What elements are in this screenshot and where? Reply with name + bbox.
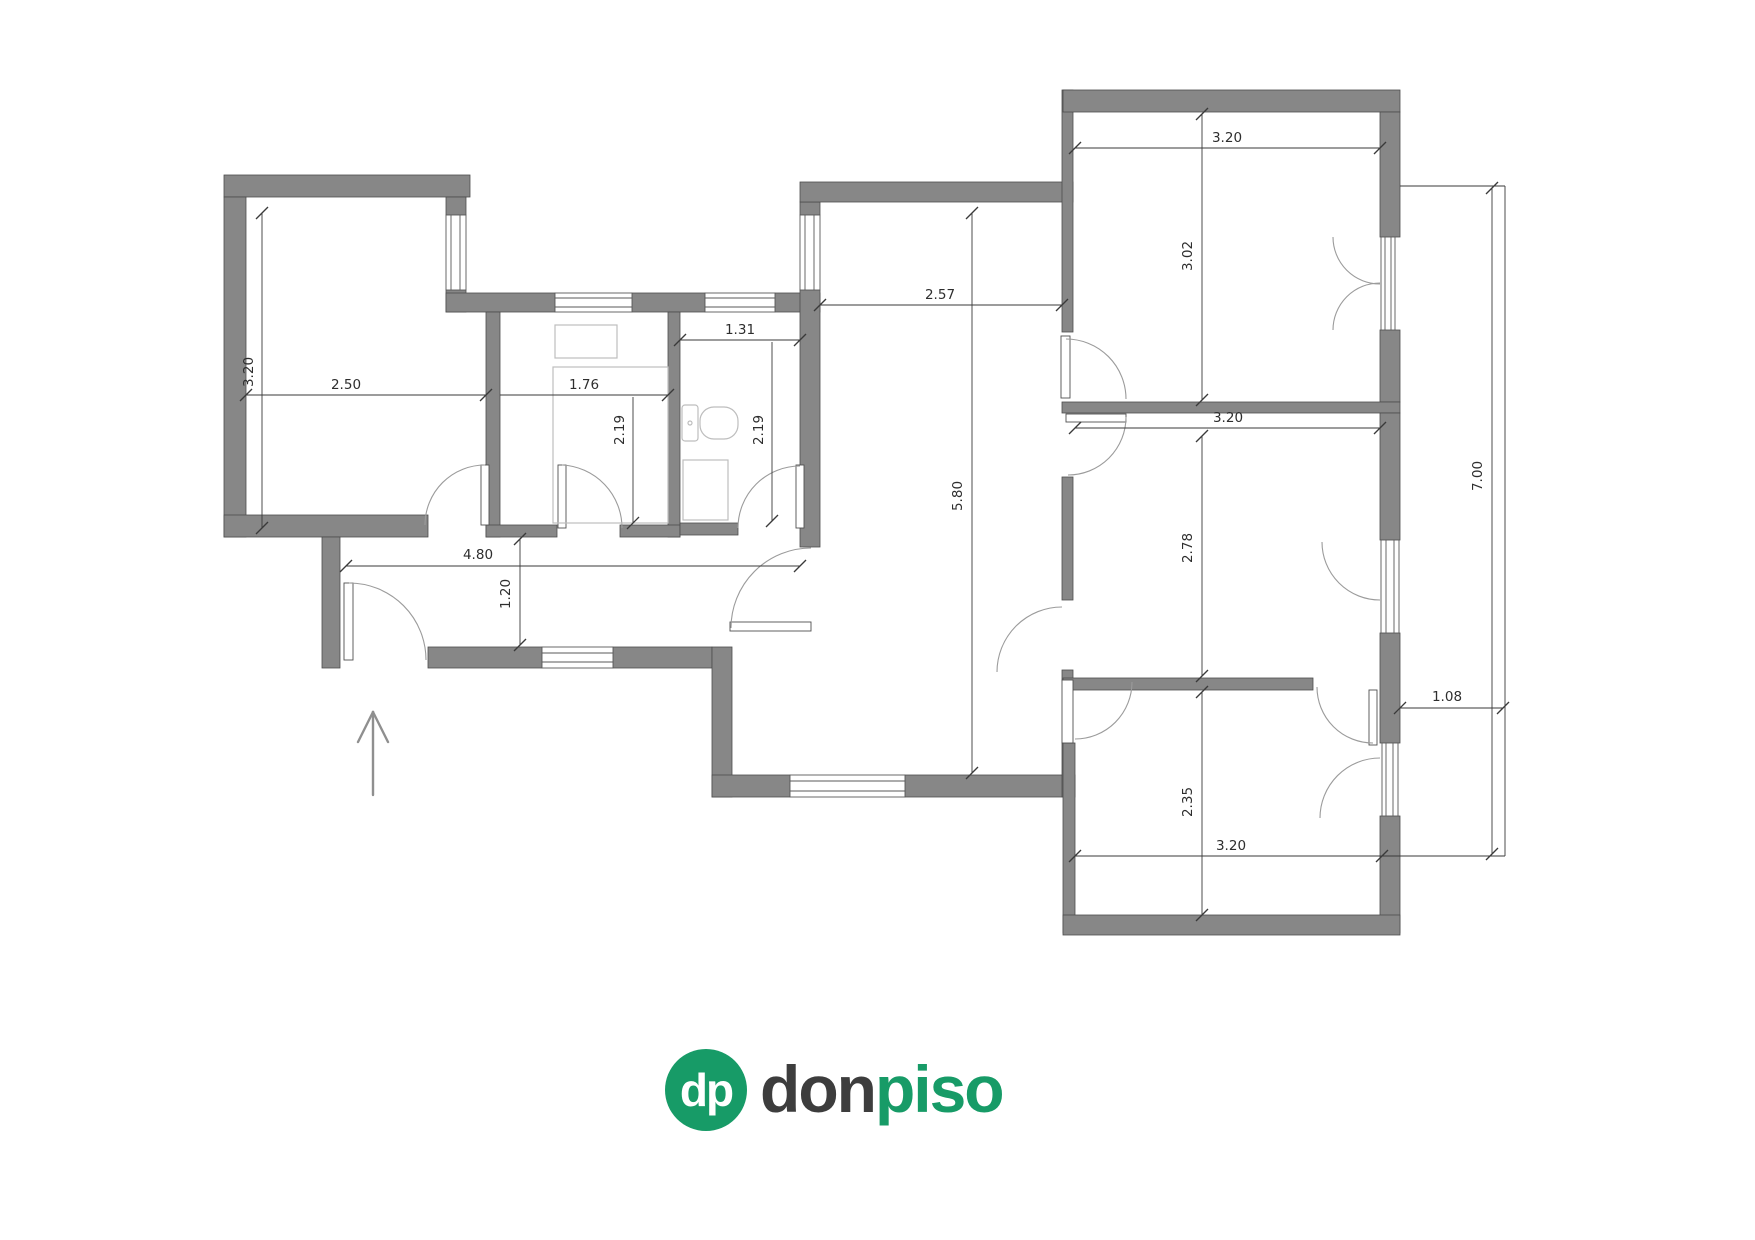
door-kitchen — [558, 465, 622, 528]
dimension-label: 2.35 — [1180, 787, 1196, 817]
door-bathroom — [738, 465, 804, 528]
balcony-edge — [1395, 186, 1505, 856]
door-hall-living — [730, 548, 811, 631]
floor-plan-drawing: 3.20 2.50 1.76 2.19 1.31 2.19 2.57 5.80 — [0, 0, 1755, 1240]
floor-plan-page: 3.20 2.50 1.76 2.19 1.31 2.19 2.57 5.80 — [0, 0, 1755, 1240]
logo-word-piso: piso — [875, 1052, 1003, 1126]
door-living-alcove — [997, 607, 1062, 672]
logo-monogram: dp — [680, 1064, 733, 1116]
window-kitchen — [555, 293, 632, 312]
svg-text:donpiso: donpiso — [760, 1052, 1003, 1126]
dimension-label: 2.50 — [331, 377, 361, 393]
toilet-icon — [682, 405, 738, 441]
door-bedroom-left — [425, 465, 489, 525]
window-living-left — [800, 215, 820, 290]
dimension-label: 1.76 — [569, 377, 599, 393]
dimension-label: 2.57 — [925, 287, 955, 303]
door-balcony-midright — [1322, 540, 1399, 633]
dimension-label: 1.20 — [498, 579, 514, 609]
dimension-label: 1.31 — [725, 322, 755, 338]
dimensions: 3.20 2.50 1.76 2.19 1.31 2.19 2.57 5.80 — [240, 108, 1509, 921]
logo-word-don: don — [760, 1052, 875, 1126]
door-entry — [344, 583, 426, 660]
dimension-label: 5.80 — [950, 481, 966, 511]
window-living-bottom — [790, 775, 905, 797]
kitchen-counter — [553, 325, 668, 523]
dimension-label: 1.08 — [1432, 689, 1462, 705]
dimension-label: 2.19 — [751, 415, 767, 445]
door-balcony-topright — [1333, 237, 1395, 330]
dimension-label: 3.02 — [1180, 241, 1196, 271]
window-bedroom-left — [446, 215, 466, 290]
dimension-label: 7.00 — [1470, 461, 1486, 491]
dimension-label: 2.78 — [1180, 533, 1196, 563]
dimension-label: 3.20 — [1216, 838, 1246, 854]
door-bedroom-topright — [1061, 336, 1126, 399]
dimension-label: 3.20 — [1212, 130, 1242, 146]
door-bedroom-bottomright-north — [1317, 687, 1377, 745]
door-bedroom-midright — [1066, 414, 1126, 475]
shower-tray — [683, 460, 728, 520]
window-bathroom — [705, 293, 775, 312]
door-balcony-bottomright — [1320, 743, 1398, 818]
brand-logo: dp donpiso — [665, 1049, 1003, 1131]
dimension-label: 3.20 — [1213, 410, 1243, 426]
dimension-label: 2.19 — [612, 415, 628, 445]
window-hallway — [542, 647, 613, 668]
entry-arrow-icon — [358, 712, 388, 795]
dimension-label: 4.80 — [463, 547, 493, 563]
dimension-label: 3.20 — [241, 357, 257, 387]
fixtures — [553, 325, 738, 523]
